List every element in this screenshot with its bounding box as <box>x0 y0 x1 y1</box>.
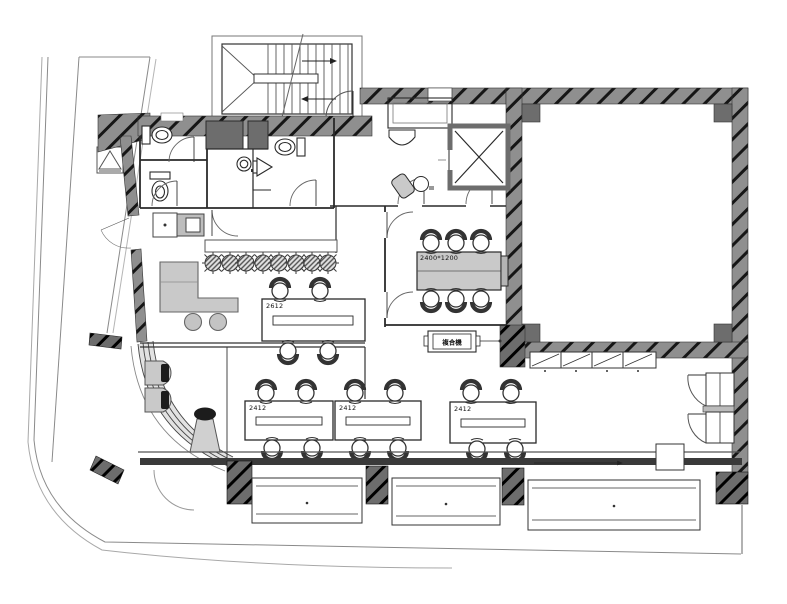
planter-row <box>202 252 339 274</box>
kitchen-sink-drain <box>164 224 167 227</box>
lounge-chair-2 <box>145 388 171 412</box>
toilet-2 <box>150 172 170 201</box>
toilet-1 <box>142 126 172 144</box>
counter <box>205 240 337 252</box>
meeting-door-gap-2 <box>381 292 389 318</box>
curve-pier-top <box>89 333 122 349</box>
table-2612: 2612 <box>262 299 365 341</box>
table-2412-b: 2412 <box>335 401 421 440</box>
awning-bay-2 <box>392 478 500 525</box>
awning-bay-3 <box>528 480 700 530</box>
window-wall-notch <box>428 88 452 101</box>
stair-winder-lines <box>222 46 258 112</box>
window-pier-2 <box>366 466 388 504</box>
table-2412-b-label: 2412 <box>339 404 356 412</box>
shelf-rack-body <box>530 352 656 368</box>
meeting-table: 2400*1200 <box>417 252 508 290</box>
stool-1 <box>185 314 202 331</box>
closet-inner <box>393 103 447 123</box>
left-door-leaf <box>101 218 129 230</box>
storage-cabinets <box>688 373 734 443</box>
task-chair-service <box>390 172 434 199</box>
copier: 複合機 <box>424 331 502 352</box>
kitchenette <box>153 213 204 237</box>
meeting-room-corner-pier <box>500 325 525 367</box>
big-room-pier-tr <box>714 104 732 122</box>
toilet-3 <box>275 138 305 156</box>
table-2412-a: 2412 <box>245 401 333 440</box>
counter-and-plants <box>202 240 339 274</box>
window-corner-block <box>716 472 748 504</box>
floor-plan: 2400*1200 複合機 <box>0 0 787 604</box>
kitchen-appliance <box>186 218 200 232</box>
window-pier-3 <box>502 468 524 505</box>
lounge-chair-1 <box>145 361 171 385</box>
service-wall-gap-2 <box>466 202 490 210</box>
toilet-roof-tab <box>161 113 183 121</box>
table-2412-c-label: 2412 <box>454 405 471 413</box>
shelf-rack <box>530 352 656 372</box>
meeting-door-arc-2 <box>387 292 413 318</box>
wall-shelf <box>656 444 684 470</box>
entrance-door-arc <box>154 470 194 510</box>
duct-shaft-2 <box>248 121 268 149</box>
copier-tab-right <box>476 336 480 346</box>
stool-2 <box>210 314 227 331</box>
floor-plan-drawing: 2400*1200 複合機 <box>0 0 787 604</box>
cabinet-unit-2 <box>688 412 734 443</box>
table-2612-label: 2612 <box>266 302 283 310</box>
meeting-door-arc-1 <box>387 212 413 238</box>
wall-left-lower <box>131 249 147 342</box>
stair-handrail <box>254 74 318 83</box>
service-room <box>330 98 508 210</box>
big-room-pier-br <box>714 324 732 342</box>
shelf-rack-feet <box>544 370 639 372</box>
meeting-table-size-label: 2400*1200 <box>420 254 458 262</box>
elevator <box>438 126 508 188</box>
awning-bay-1 <box>252 478 362 523</box>
copier-tab-left <box>424 336 428 346</box>
strip-edge-left <box>52 57 79 462</box>
office-tables: 2612 2412 2412 2412 <box>245 279 536 461</box>
table-2412-c: 2412 <box>450 402 536 443</box>
l-shaped-desk <box>160 262 238 331</box>
copier-label: 複合機 <box>441 338 462 347</box>
cabinet-unit-1 <box>688 373 734 406</box>
meeting-door-gap-1 <box>381 212 389 238</box>
service-basin <box>389 130 415 145</box>
cabinet-shelf-band <box>703 406 734 412</box>
big-room-wall-top <box>506 88 748 104</box>
curve-pier-bottom <box>90 456 124 484</box>
duct-shaft-1 <box>206 121 243 149</box>
window-pier-1 <box>227 461 252 504</box>
copier-connector-dot <box>499 340 502 343</box>
big-room-pier-tl <box>522 104 540 122</box>
urinal <box>253 158 272 190</box>
staircase <box>212 34 362 122</box>
wash-basin <box>237 157 255 172</box>
table-2412-a-label: 2412 <box>249 404 266 412</box>
lounge-chair-tall <box>190 408 220 453</box>
service-wall-gap-1 <box>398 202 422 210</box>
